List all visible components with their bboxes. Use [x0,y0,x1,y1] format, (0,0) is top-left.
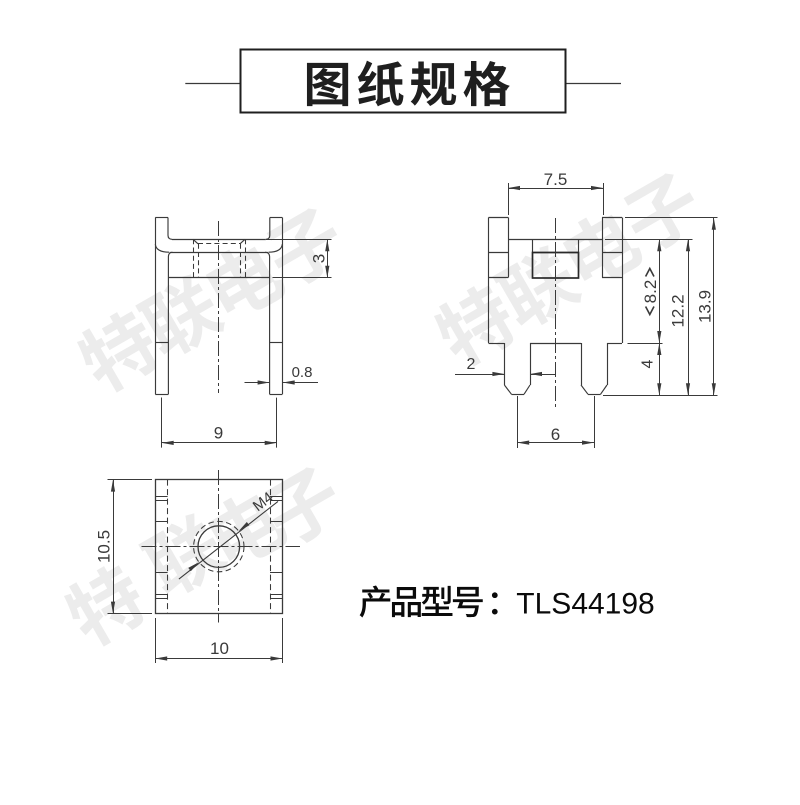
svg-text:6: 6 [551,425,560,444]
svg-text:13.9: 13.9 [696,290,715,323]
svg-text:9: 9 [214,424,223,443]
svg-text:3: 3 [310,254,329,263]
svg-text:12.2: 12.2 [669,294,688,327]
svg-text:8.2: 8.2 [641,280,660,304]
svg-text:10: 10 [210,639,229,658]
svg-text:0.8: 0.8 [292,364,313,381]
svg-text:10.5: 10.5 [95,530,114,563]
svg-text:4: 4 [639,359,656,368]
svg-text:7.5: 7.5 [544,170,568,189]
svg-text:TLS44198: TLS44198 [516,588,654,621]
svg-text:2: 2 [467,356,476,373]
